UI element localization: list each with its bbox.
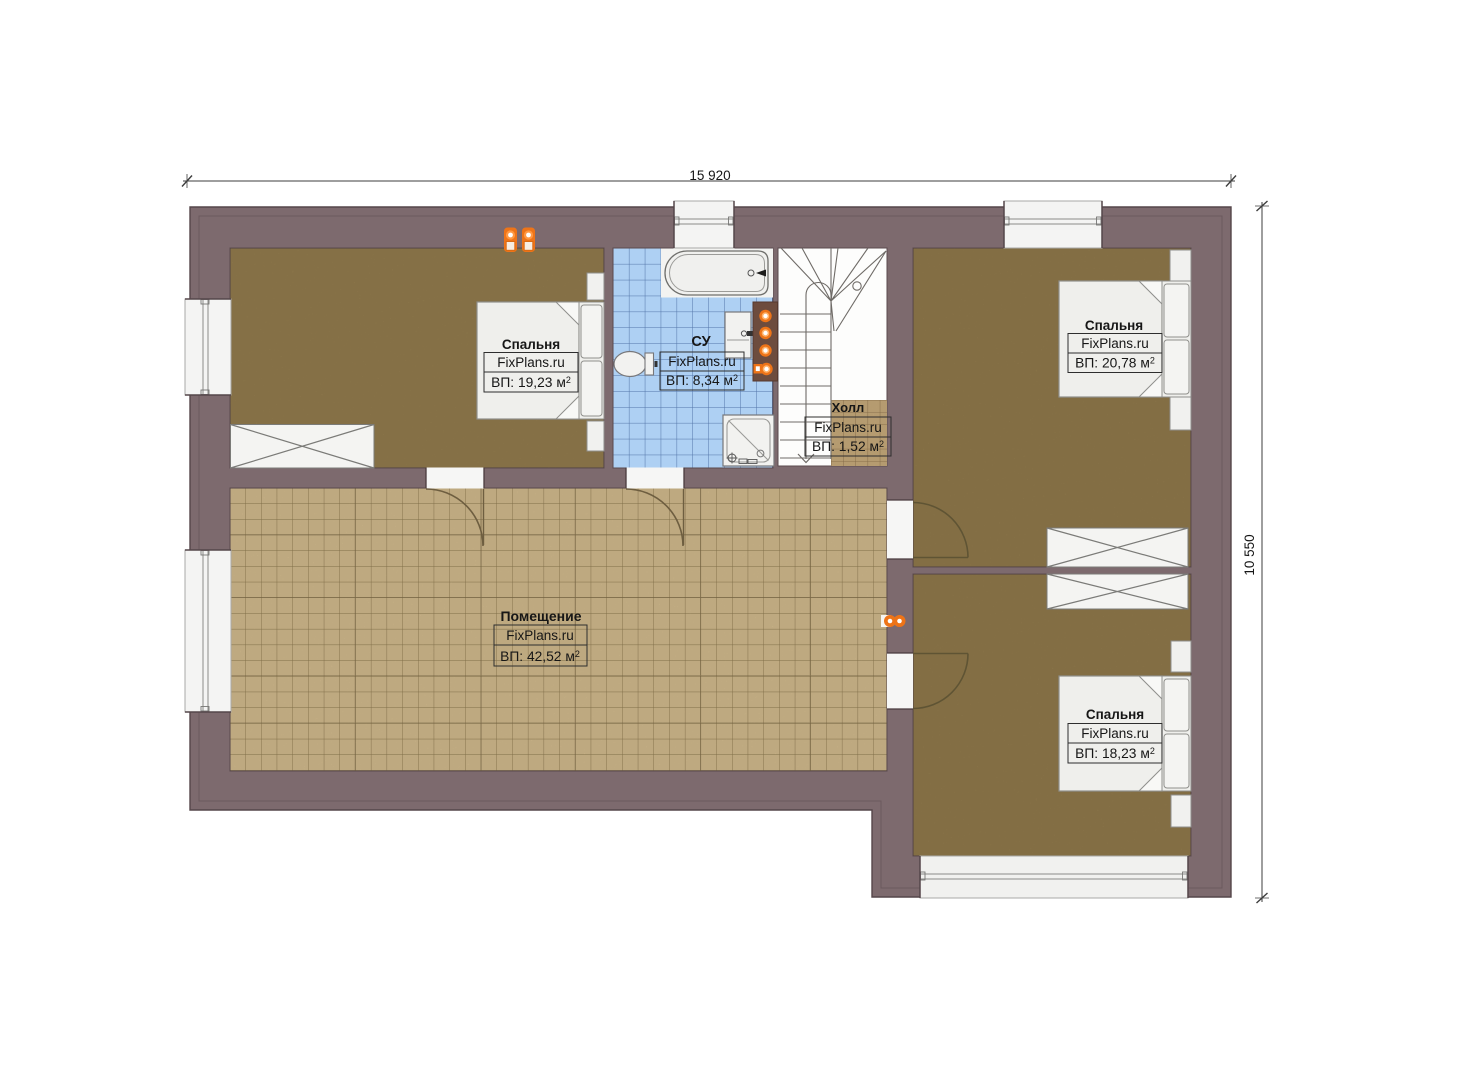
svg-text:FixPlans.ru: FixPlans.ru	[668, 354, 736, 369]
svg-text:Спальня: Спальня	[1085, 318, 1143, 333]
svg-text:Холл: Холл	[832, 400, 865, 415]
svg-text:ВП: 18,23 м2: ВП: 18,23 м2	[1075, 746, 1155, 761]
svg-text:15 920: 15 920	[689, 168, 730, 183]
svg-text:Спальня: Спальня	[502, 337, 560, 352]
svg-text:ВП: 20,78 м2: ВП: 20,78 м2	[1075, 356, 1155, 371]
svg-text:FixPlans.ru: FixPlans.ru	[814, 420, 882, 435]
svg-text:FixPlans.ru: FixPlans.ru	[1081, 726, 1149, 741]
svg-text:FixPlans.ru: FixPlans.ru	[506, 628, 574, 643]
svg-text:FixPlans.ru: FixPlans.ru	[1081, 336, 1149, 351]
svg-text:СУ: СУ	[691, 334, 711, 350]
svg-text:Спальня: Спальня	[1086, 707, 1144, 722]
svg-text:Помещение: Помещение	[500, 608, 581, 624]
svg-text:ВП: 42,52 м2: ВП: 42,52 м2	[500, 649, 580, 664]
svg-text:FixPlans.ru: FixPlans.ru	[497, 355, 565, 370]
svg-text:10 550: 10 550	[1242, 534, 1257, 575]
svg-text:ВП: 1,52 м2: ВП: 1,52 м2	[812, 439, 884, 454]
svg-text:ВП: 8,34 м2: ВП: 8,34 м2	[666, 373, 738, 388]
svg-text:ВП: 19,23 м2: ВП: 19,23 м2	[491, 375, 571, 390]
